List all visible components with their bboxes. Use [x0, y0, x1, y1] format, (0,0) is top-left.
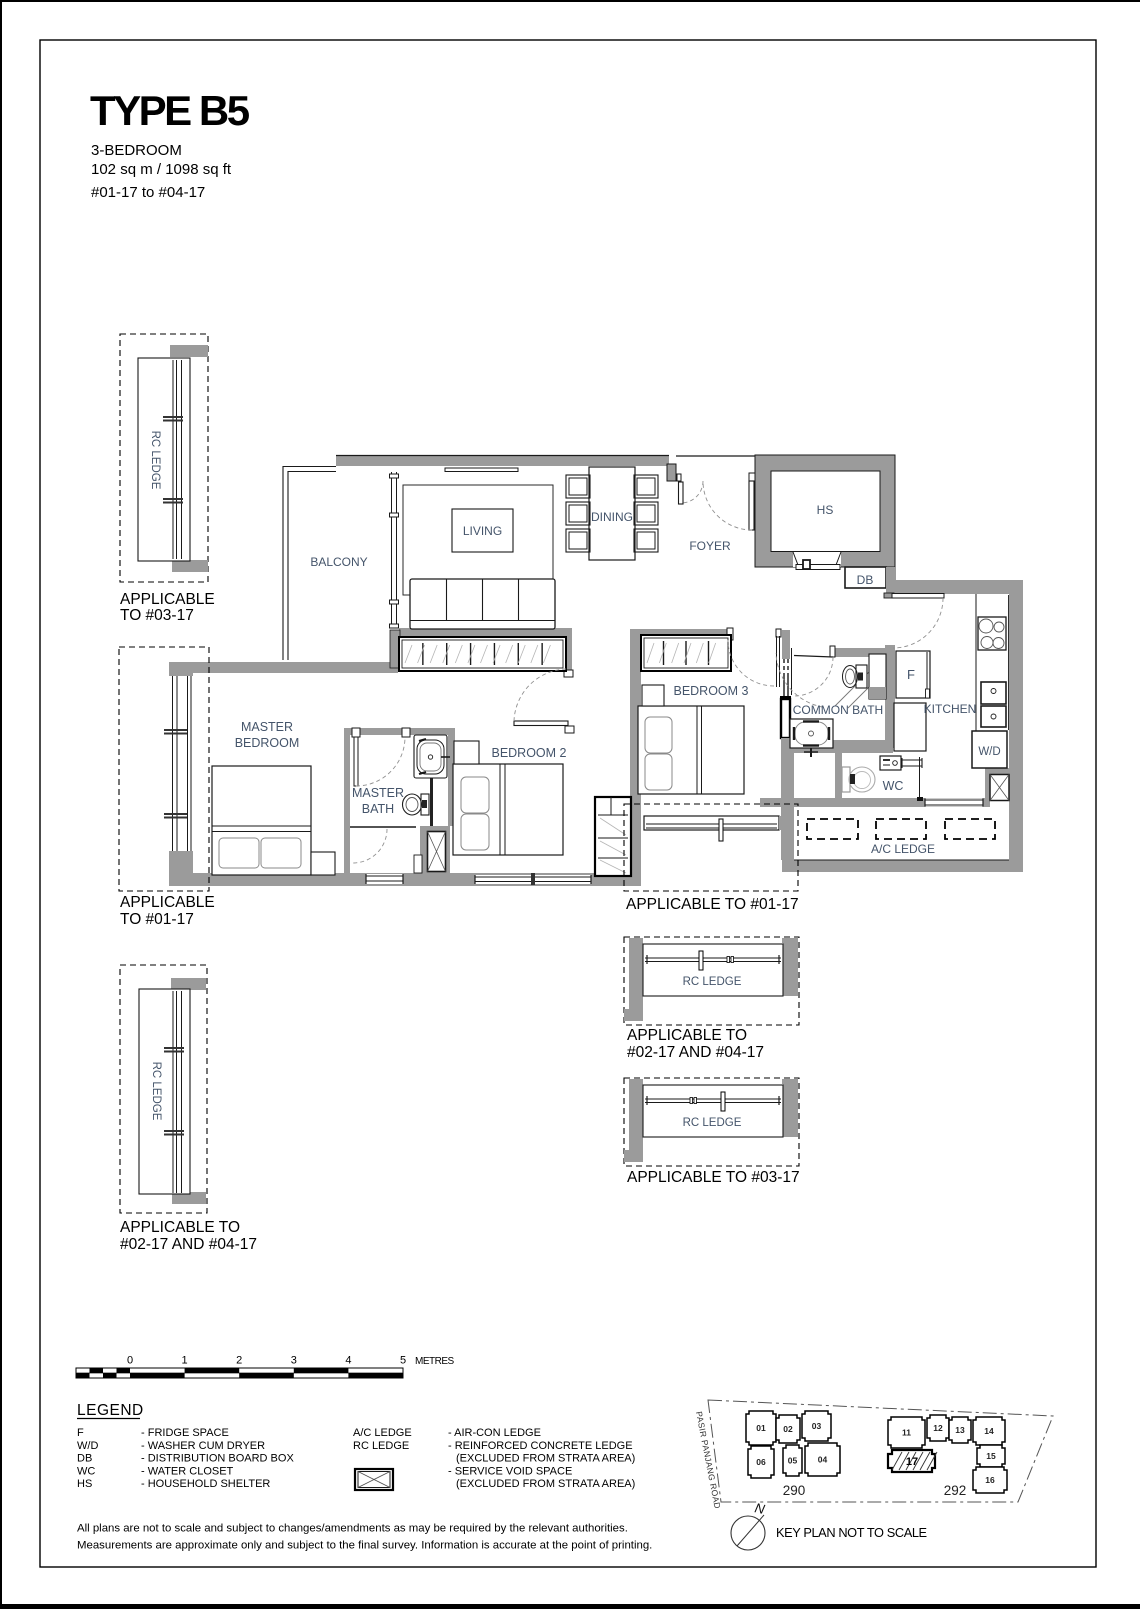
svg-text:- FRIDGE SPACE: - FRIDGE SPACE: [141, 1427, 229, 1439]
svg-text:11: 11: [902, 1428, 911, 1438]
svg-text:APPLICABLE TO: APPLICABLE TO: [120, 1219, 240, 1236]
svg-text:BEDROOM 3: BEDROOM 3: [673, 684, 748, 698]
svg-text:12: 12: [933, 1423, 943, 1433]
svg-text:HS: HS: [817, 503, 834, 517]
svg-text:DB: DB: [77, 1453, 92, 1465]
svg-text:KEY PLAN NOT TO SCALE: KEY PLAN NOT TO SCALE: [776, 1525, 927, 1540]
svg-text:APPLICABLE: APPLICABLE: [120, 894, 215, 911]
svg-text:APPLICABLE: APPLICABLE: [120, 591, 215, 608]
svg-text:- WATER CLOSET: - WATER CLOSET: [141, 1465, 234, 1477]
svg-text:APPLICABLE TO: APPLICABLE TO: [627, 1027, 747, 1044]
svg-text:RC LEDGE: RC LEDGE: [683, 976, 742, 988]
svg-text:17: 17: [906, 1456, 918, 1468]
svg-text:APPLICABLE TO #03-17: APPLICABLE TO #03-17: [627, 1169, 800, 1186]
svg-text:RC LEDGE: RC LEDGE: [149, 431, 161, 490]
svg-text:0: 0: [127, 1355, 133, 1367]
svg-text:MASTER: MASTER: [241, 720, 293, 734]
svg-text:DINING: DINING: [591, 510, 633, 524]
svg-text:RC LEDGE: RC LEDGE: [150, 1062, 162, 1121]
svg-text:- AIR-CON LEDGE: - AIR-CON LEDGE: [448, 1427, 541, 1439]
svg-text:01: 01: [756, 1423, 766, 1433]
svg-text:04: 04: [818, 1455, 828, 1465]
svg-text:- SERVICE VOID SPACE: - SERVICE VOID SPACE: [448, 1465, 572, 1477]
svg-text:292: 292: [944, 1483, 967, 1498]
svg-text:- DISTRIBUTION BOARD BOX: - DISTRIBUTION BOARD BOX: [141, 1453, 294, 1465]
svg-text:- WASHER CUM DRYER: - WASHER CUM DRYER: [141, 1440, 265, 1452]
svg-text:2: 2: [236, 1355, 242, 1367]
svg-text:(EXCLUDED FROM STRATA AREA): (EXCLUDED FROM STRATA AREA): [456, 1453, 635, 1465]
svg-text:14: 14: [984, 1426, 994, 1436]
svg-text:4: 4: [345, 1355, 351, 1367]
svg-text:APPLICABLE TO #01-17: APPLICABLE TO #01-17: [626, 896, 799, 913]
svg-text:KITCHEN: KITCHEN: [924, 702, 977, 716]
svg-text:15: 15: [986, 1451, 996, 1461]
svg-text:Measurements are approximate o: Measurements are approximate only and su…: [77, 1540, 652, 1552]
svg-text:All plans are not to scale and: All plans are not to scale and subject t…: [77, 1523, 628, 1535]
svg-text:COMMON BATH: COMMON BATH: [793, 703, 883, 717]
svg-text:(EXCLUDED FROM STRATA AREA): (EXCLUDED FROM STRATA AREA): [456, 1478, 635, 1490]
svg-text:BALCONY: BALCONY: [310, 555, 367, 569]
svg-text:TO #01-17: TO #01-17: [120, 911, 194, 928]
svg-text:F: F: [907, 667, 915, 682]
svg-text:06: 06: [756, 1457, 766, 1467]
svg-text:LIVING: LIVING: [463, 524, 502, 538]
svg-text:#01-17 to #04-17: #01-17 to #04-17: [91, 184, 205, 201]
svg-text:W/D: W/D: [77, 1440, 98, 1452]
svg-text:290: 290: [783, 1483, 806, 1498]
svg-text:DB: DB: [857, 573, 874, 587]
svg-text:WC: WC: [77, 1465, 95, 1477]
svg-text:TO #03-17: TO #03-17: [120, 607, 194, 624]
svg-text:W/D: W/D: [978, 746, 1000, 758]
svg-text:A/C LEDGE: A/C LEDGE: [353, 1427, 412, 1439]
svg-text:1: 1: [182, 1355, 188, 1367]
svg-text:A/C LEDGE: A/C LEDGE: [871, 842, 935, 856]
svg-text:#02-17 AND #04-17: #02-17 AND #04-17: [627, 1044, 764, 1061]
svg-text:BEDROOM 2: BEDROOM 2: [491, 746, 566, 760]
svg-text:WC: WC: [883, 779, 904, 793]
svg-text:FOYER: FOYER: [689, 539, 731, 553]
svg-text:05: 05: [788, 1456, 798, 1466]
svg-text:- HOUSEHOLD SHELTER: - HOUSEHOLD SHELTER: [141, 1478, 270, 1490]
svg-text:3-BEDROOM: 3-BEDROOM: [91, 142, 182, 159]
svg-text:102 sq m / 1098 sq ft: 102 sq m / 1098 sq ft: [91, 161, 232, 178]
svg-text:TYPE B5: TYPE B5: [90, 87, 250, 134]
svg-text:3: 3: [291, 1355, 297, 1367]
svg-text:RC LEDGE: RC LEDGE: [353, 1440, 409, 1452]
svg-text:BEDROOM: BEDROOM: [235, 736, 300, 750]
svg-text:MASTER: MASTER: [352, 786, 404, 800]
svg-text:BATH: BATH: [362, 802, 394, 816]
svg-text:RC LEDGE: RC LEDGE: [683, 1117, 742, 1129]
svg-text:F: F: [77, 1427, 84, 1439]
svg-text:16: 16: [985, 1475, 995, 1485]
svg-text:02: 02: [783, 1424, 793, 1434]
svg-text:03: 03: [812, 1421, 822, 1431]
svg-text:HS: HS: [77, 1478, 92, 1490]
svg-text:5: 5: [400, 1355, 406, 1367]
svg-text:- REINFORCED CONCRETE LEDGE: - REINFORCED CONCRETE LEDGE: [448, 1440, 633, 1452]
svg-text:LEGEND: LEGEND: [77, 1402, 144, 1419]
svg-text:#02-17 AND #04-17: #02-17 AND #04-17: [120, 1236, 257, 1253]
svg-text:METRES: METRES: [415, 1356, 455, 1367]
svg-text:13: 13: [955, 1425, 965, 1435]
